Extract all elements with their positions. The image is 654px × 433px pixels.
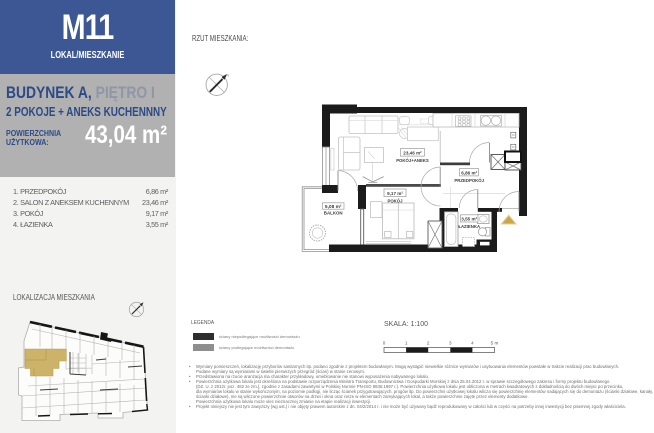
svg-text:POKÓJ: POKÓJ — [387, 198, 403, 203]
svg-text:N: N — [227, 74, 230, 78]
svg-text:5 m: 5 m — [491, 341, 499, 346]
svg-text:PRZEDPOKÓJ: PRZEDPOKÓJ — [454, 178, 484, 183]
svg-text:ŁAZIENKA: ŁAZIENKA — [458, 224, 480, 229]
svg-text:5,08 m²: 5,08 m² — [325, 204, 342, 210]
svg-text:BALKON: BALKON — [324, 211, 343, 216]
svg-text:3,55 m²: 3,55 m² — [461, 216, 477, 221]
svg-text:POKÓJ+ANEKS: POKÓJ+ANEKS — [396, 158, 429, 163]
svg-text:0: 0 — [383, 341, 386, 346]
svg-text:6,86 m²: 6,86 m² — [461, 170, 477, 175]
svg-text:3: 3 — [449, 341, 452, 346]
svg-text:1: 1 — [405, 341, 408, 346]
svg-text:23,46 m²: 23,46 m² — [403, 150, 422, 155]
svg-text:2: 2 — [427, 341, 430, 346]
svg-text:4: 4 — [471, 341, 474, 346]
svg-text:9,17 m²: 9,17 m² — [387, 191, 403, 196]
